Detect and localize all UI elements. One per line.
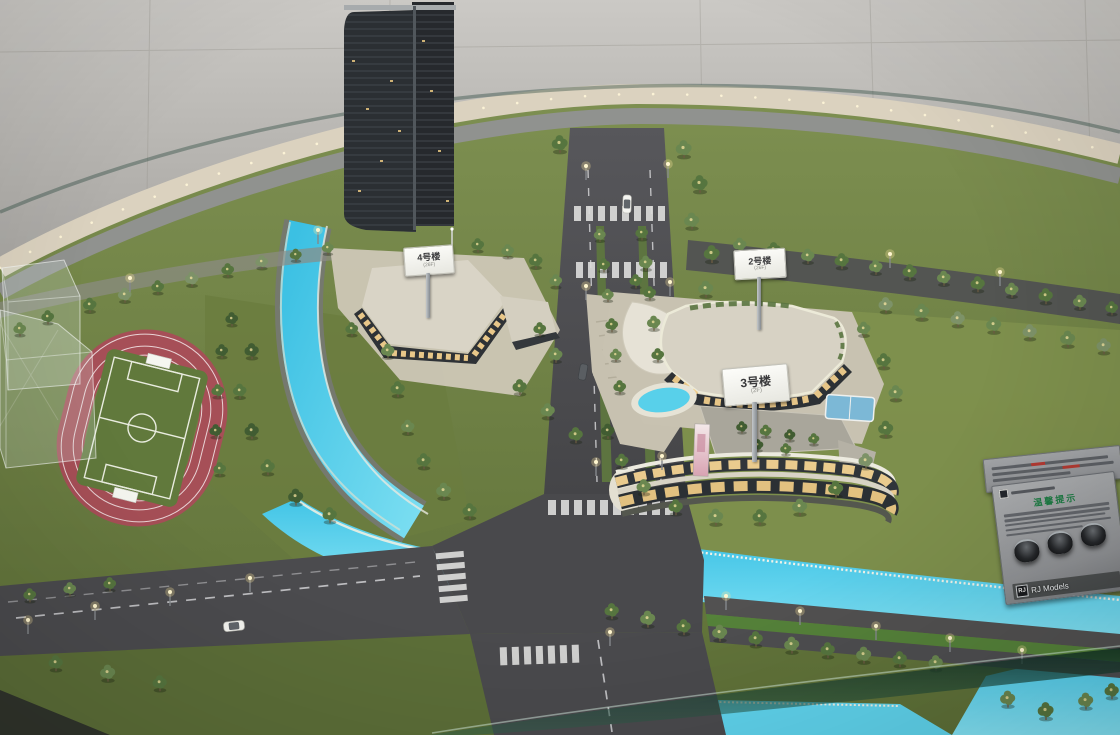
white-car-north bbox=[622, 195, 631, 213]
sign-sub: (26F) bbox=[423, 262, 435, 268]
control-knob-1[interactable] bbox=[1013, 538, 1041, 564]
maker-name: RJ Models bbox=[1031, 581, 1070, 595]
building-sign-2: 2号楼 (26F) bbox=[733, 248, 786, 281]
plaque-logo-mark bbox=[999, 489, 1009, 499]
photo-architectural-model: 4号楼 (26F) 2号楼 (26F) 3号楼 (2F) 温馨提示 RJ RJ … bbox=[0, 0, 1120, 735]
model-scene bbox=[0, 0, 1120, 735]
sports-court bbox=[825, 394, 875, 421]
control-knob-2[interactable] bbox=[1046, 530, 1074, 556]
sign-sub: (26F) bbox=[754, 266, 766, 272]
tower-building bbox=[344, 2, 456, 232]
sign-post-4 bbox=[426, 273, 430, 318]
warm-tips-plaque: 温馨提示 RJ RJ Models bbox=[991, 471, 1120, 605]
building-sign-4: 4号楼 (26F) bbox=[403, 244, 455, 276]
building-sign-3: 3号楼 (2F) bbox=[721, 363, 790, 407]
control-knob-3[interactable] bbox=[1080, 521, 1108, 547]
sign-post-2 bbox=[757, 277, 761, 330]
white-car-west bbox=[223, 620, 245, 632]
facade-poster bbox=[693, 424, 710, 476]
sign-post-3 bbox=[752, 402, 757, 462]
sign-sub: (2F) bbox=[751, 388, 763, 395]
maker-logo-icon: RJ bbox=[1015, 584, 1028, 597]
plaque-header-bar bbox=[1011, 486, 1055, 494]
